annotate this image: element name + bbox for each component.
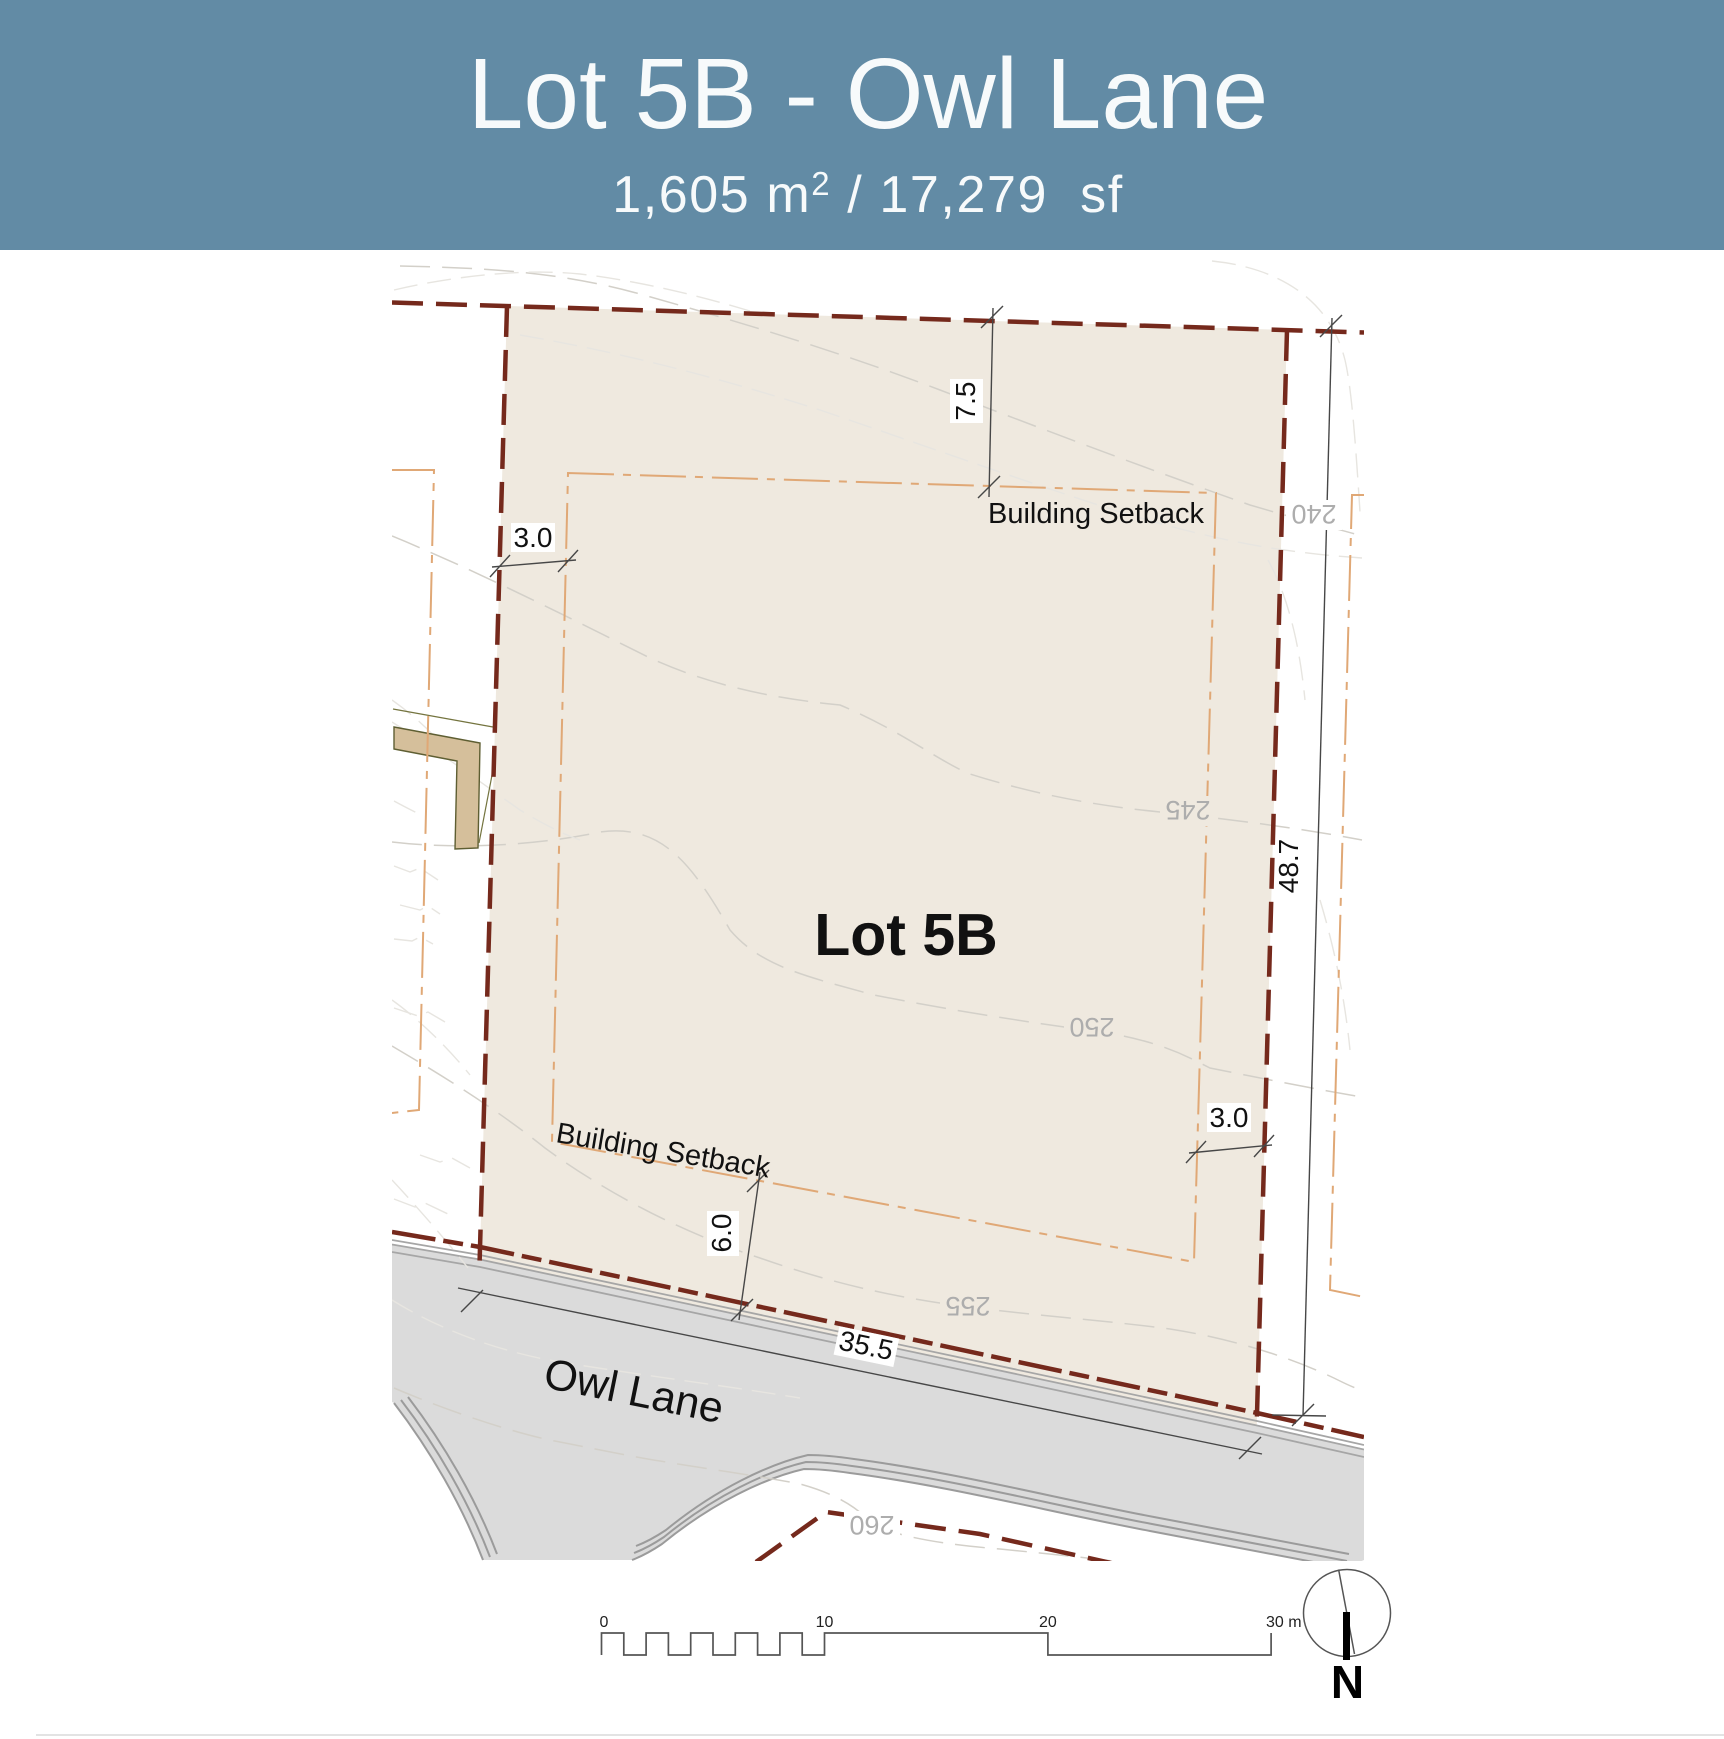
svg-text:48.7: 48.7 [1273,839,1304,894]
svg-text:255: 255 [945,1291,990,1321]
svg-text:Lot 5B - Owl Lane: Lot 5B - Owl Lane [468,38,1268,150]
svg-text:Building Setback: Building Setback [988,498,1205,530]
svg-text:1,605 m2 / 17,279 sf: 1,605 m2 / 17,279 sf [612,165,1124,224]
svg-text:3.0: 3.0 [514,522,553,553]
svg-text:260: 260 [849,1510,894,1540]
svg-text:6.0: 6.0 [706,1214,737,1253]
svg-text:10: 10 [816,1614,834,1631]
svg-text:20: 20 [1039,1614,1057,1631]
svg-text:N: N [1331,1656,1364,1708]
svg-text:7.5: 7.5 [950,382,981,421]
svg-text:250: 250 [1069,1012,1114,1042]
svg-text:Lot 5B: Lot 5B [814,902,998,968]
svg-text:0: 0 [600,1614,609,1631]
svg-text:245: 245 [1165,795,1210,825]
svg-text:3.0: 3.0 [1210,1102,1249,1133]
svg-text:240: 240 [1291,499,1336,529]
svg-text:30 m: 30 m [1266,1614,1302,1631]
